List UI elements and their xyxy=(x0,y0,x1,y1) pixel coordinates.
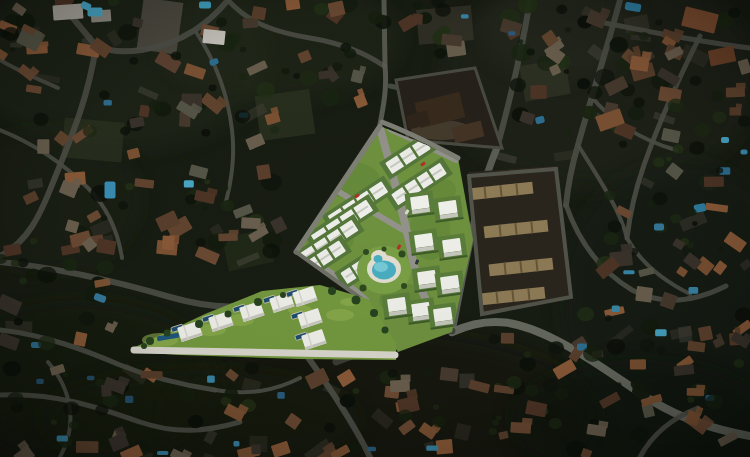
aerial-map xyxy=(0,0,750,457)
aerial-photo-stage xyxy=(0,0,750,457)
vignette xyxy=(0,0,750,457)
